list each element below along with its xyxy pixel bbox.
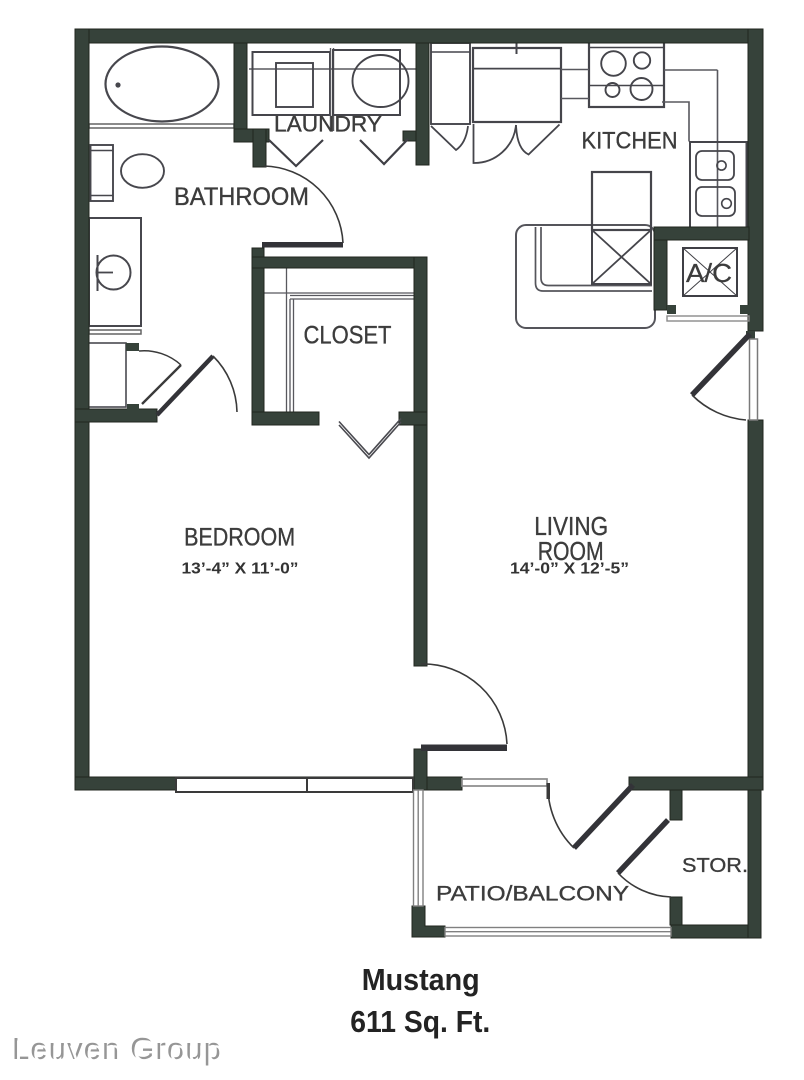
svg-text:LAUNDRY: LAUNDRY: [274, 112, 382, 137]
svg-text:Leuven Group: Leuven Group: [15, 1034, 224, 1069]
svg-text:LIVING: LIVING: [534, 513, 608, 541]
svg-text:STOR.: STOR.: [682, 855, 748, 877]
svg-text:611 Sq. Ft.: 611 Sq. Ft.: [350, 1004, 490, 1039]
svg-text:A/C: A/C: [686, 258, 732, 288]
svg-text:KITCHEN: KITCHEN: [582, 128, 678, 155]
svg-text:14’-0” X 12’-5”: 14’-0” X 12’-5”: [510, 561, 629, 578]
svg-text:PATIO/BALCONY: PATIO/BALCONY: [436, 883, 629, 906]
svg-text:CLOSET: CLOSET: [304, 322, 392, 350]
svg-text:13’-4” X 11’-0”: 13’-4” X 11’-0”: [182, 561, 299, 578]
svg-text:Mustang: Mustang: [362, 962, 480, 997]
svg-text:BEDROOM: BEDROOM: [184, 524, 295, 552]
svg-text:BATHROOM: BATHROOM: [174, 183, 309, 211]
